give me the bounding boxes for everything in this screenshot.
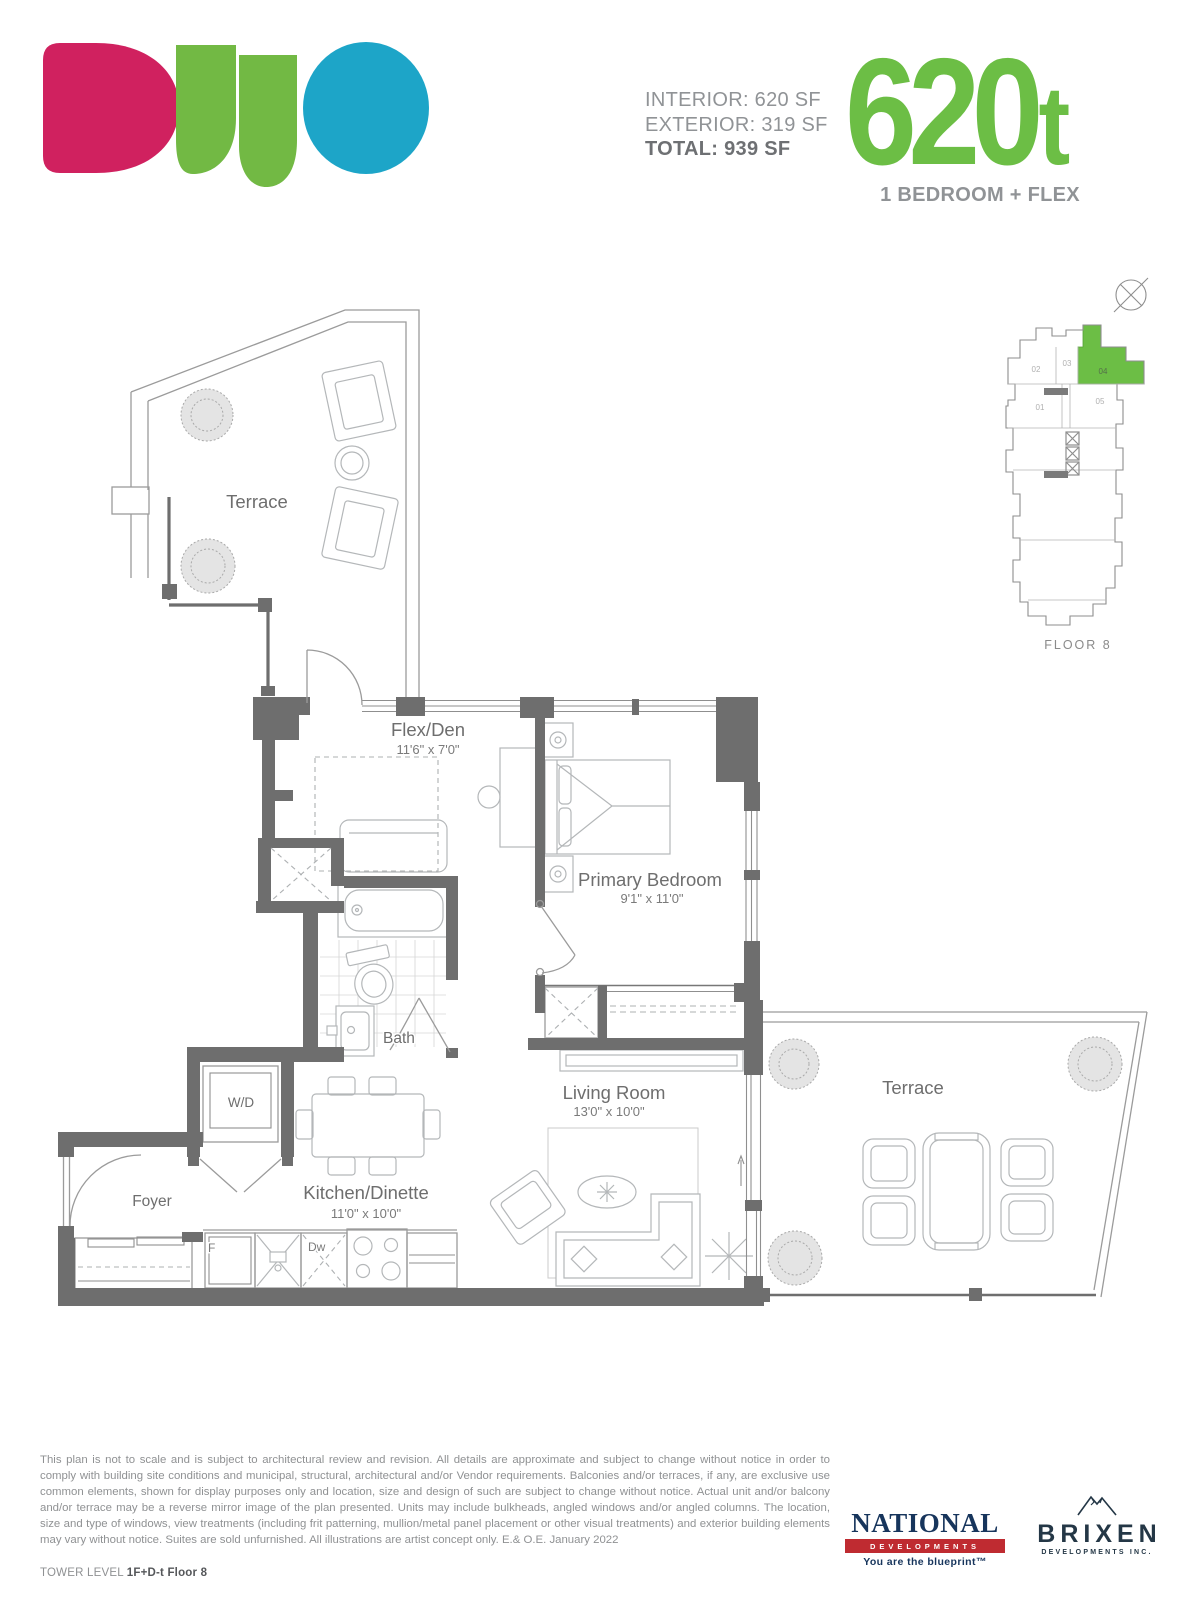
stove bbox=[347, 1229, 407, 1288]
keyplan-unit-01: 01 bbox=[1036, 403, 1045, 412]
floorplan-sheet: INTERIOR: 620 SF EXTERIOR: 319 SF TOTAL:… bbox=[0, 0, 1200, 1613]
national-tagline: You are the blueprint™ bbox=[845, 1556, 1005, 1568]
label-foyer: Foyer bbox=[132, 1193, 172, 1210]
label-fridge: F bbox=[208, 1241, 215, 1255]
dinette-set bbox=[296, 1077, 440, 1175]
tower-level-value: 1F+D-t Floor 8 bbox=[127, 1567, 207, 1579]
label-terrace-right: Terrace bbox=[882, 1077, 944, 1098]
armchair bbox=[489, 1169, 567, 1247]
mountain-icon bbox=[1074, 1492, 1120, 1516]
national-wordmark: NATIONAL bbox=[845, 1510, 1005, 1537]
desk bbox=[500, 748, 536, 847]
brixen-logo: BRIXEN DEVELOPMENTS INC. bbox=[1022, 1492, 1172, 1556]
label-bath: Bath bbox=[383, 1030, 415, 1047]
floor-plant bbox=[705, 1232, 753, 1280]
disclaimer-text: This plan is not to scale and is subject… bbox=[40, 1452, 830, 1548]
terrace-railing bbox=[169, 497, 268, 693]
parapet-notch bbox=[112, 487, 149, 514]
cabinet bbox=[407, 1233, 457, 1288]
nightstand bbox=[543, 723, 573, 757]
desk-chair bbox=[478, 786, 500, 808]
bathtub bbox=[338, 884, 450, 937]
side-table bbox=[335, 446, 369, 480]
keyplan: 02 03 04 01 05 FLOOR 8 bbox=[1006, 278, 1148, 652]
slide-arrow-icon bbox=[738, 1156, 744, 1186]
label-wd: W/D bbox=[228, 1095, 254, 1110]
bedroom-closets bbox=[545, 986, 744, 1039]
keyplan-unit-02: 02 bbox=[1032, 365, 1041, 374]
entry-door bbox=[64, 1155, 142, 1226]
media-console bbox=[560, 1050, 743, 1071]
label-kitchen-dims: 11'0" x 10'0" bbox=[331, 1206, 402, 1221]
bedroom-door bbox=[541, 906, 575, 973]
sofa-bed bbox=[340, 820, 447, 872]
bed bbox=[545, 760, 670, 854]
dining-table bbox=[312, 1094, 424, 1157]
label-terrace-top: Terrace bbox=[226, 491, 288, 512]
label-flex: Flex/Den bbox=[391, 719, 465, 740]
terrace-door bbox=[307, 650, 362, 705]
sliding-closet bbox=[610, 1006, 740, 1012]
label-living: Living Room bbox=[563, 1082, 666, 1103]
label-dishwasher: Dw bbox=[308, 1240, 326, 1254]
bedroom-furniture bbox=[543, 723, 670, 892]
flex-furniture bbox=[315, 748, 536, 872]
foyer-closet bbox=[75, 1237, 192, 1290]
tower-level-label: TOWER LEVEL bbox=[40, 1567, 127, 1579]
keyplan-elevators bbox=[1066, 432, 1079, 475]
tower-level: TOWER LEVEL 1F+D-t Floor 8 bbox=[40, 1567, 207, 1579]
table-plant bbox=[597, 1182, 617, 1202]
lounge-chair bbox=[321, 486, 399, 570]
label-kitchen: Kitchen/Dinette bbox=[303, 1182, 428, 1203]
national-logo: NATIONAL DEVELOPMENTS You are the bluepr… bbox=[845, 1510, 1005, 1568]
keyplan-unit-03: 03 bbox=[1063, 359, 1072, 368]
label-flex-dims: 11'6" x 7'0" bbox=[396, 742, 459, 757]
keyplan-highlight-unit bbox=[1078, 325, 1144, 384]
nightstand bbox=[543, 856, 573, 892]
label-living-dims: 13'0" x 10'0" bbox=[573, 1104, 645, 1119]
shower bbox=[271, 848, 331, 901]
brixen-wordmark: BRIXEN bbox=[1022, 1521, 1177, 1547]
wd-doors bbox=[200, 1159, 281, 1192]
keyplan-floor-label: FLOOR 8 bbox=[1044, 638, 1112, 652]
label-bedroom-dims: 9'1" x 11'0" bbox=[620, 891, 683, 906]
floorplan: Terrace Flex/Den 11'6" x 7'0" Primary Be… bbox=[0, 0, 1200, 1613]
keyplan-unit-04: 04 bbox=[1099, 367, 1108, 376]
terrace-right bbox=[760, 1012, 1147, 1302]
label-bedroom: Primary Bedroom bbox=[578, 869, 722, 890]
kitchen-fixtures bbox=[203, 1229, 457, 1288]
lounge-chair bbox=[321, 360, 396, 441]
brixen-division: DEVELOPMENTS INC. bbox=[1022, 1549, 1172, 1556]
keyplan-unit-05: 05 bbox=[1096, 397, 1105, 406]
compass-icon bbox=[1114, 278, 1148, 312]
outdoor-dining-set bbox=[863, 1133, 1053, 1250]
national-division: DEVELOPMENTS bbox=[845, 1539, 1005, 1553]
